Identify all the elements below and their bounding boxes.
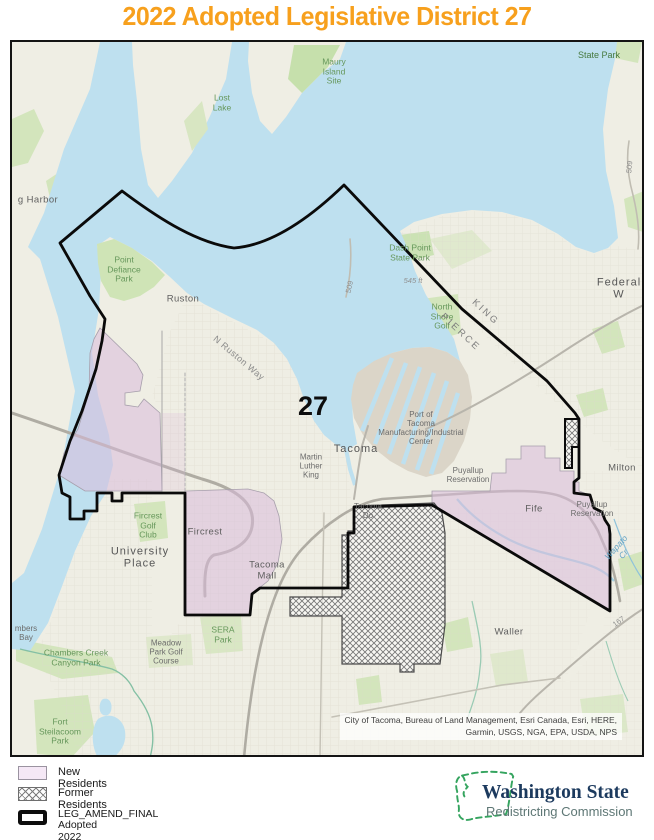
map-label-north-shore-golf: North Shore Golf: [431, 303, 454, 332]
map-label-milton: Milton: [608, 464, 636, 475]
map-label-fort-steilacoom-park: Fort Steilacoom Park: [39, 718, 81, 747]
map-labels: State ParkLost LakeMaury Island Siteg Ha…: [12, 42, 642, 755]
map-label-fircrest-golf-club: Fircrest Golf Club: [134, 512, 162, 541]
map-label-tacoma-mall: Tacoma Mall: [249, 560, 285, 581]
map-label-route-509-b: 509: [625, 160, 634, 173]
map-label-university-place: University Place: [111, 546, 169, 571]
map-label-gig-harbor: g Harbor: [18, 196, 58, 207]
map-label-chambers-creek-canyon-park: Chambers Creek Canyon Park: [44, 648, 108, 667]
map-label-puyallup-reservation-1: Puyallup Reservation: [447, 467, 490, 485]
map-label-state-park: State Park: [578, 50, 620, 60]
leg-amend-swatch: [18, 810, 47, 825]
page: 2022 Adopted Legislative District 27: [0, 0, 654, 840]
map-label-route-509-a: 509: [345, 280, 356, 294]
leg-amend-sublabel: Adopted 2022: [58, 819, 97, 840]
commission-logo: Washington State Redistricting Commissio…: [446, 760, 651, 838]
attribution-line1: City of Tacoma, Bureau of Land Managemen…: [345, 715, 617, 727]
map-label-meadow-park-golf: Meadow Park Golf Course: [149, 640, 182, 667]
page-title: 2022 Adopted Legislative District 27: [13, 1, 641, 32]
map-attribution: City of Tacoma, Bureau of Land Managemen…: [340, 713, 622, 740]
map-label-federal-way: Federal W: [597, 277, 641, 302]
attribution-line2: Garmin, USGS, NGA, EPA, USDA, NPS: [345, 727, 617, 739]
map-label-county-king: KING: [469, 298, 501, 328]
map-label-waller: Waller: [495, 628, 524, 639]
map-label-tacoma: Tacoma: [334, 443, 379, 455]
map-label-fircrest: Fircrest: [188, 528, 223, 539]
map-label-sera-park: SERA Park: [211, 625, 234, 644]
map-label-port-of-tacoma: Port of Tacoma Manufacturing/Industrial …: [378, 411, 463, 447]
former-residents-swatch: [18, 787, 47, 801]
map-label-tacoma-dome: Tacoma Do: [354, 503, 382, 521]
map-label-district-27: 27: [298, 391, 328, 421]
map-label-fife: Fife: [525, 505, 542, 516]
new-residents-swatch: [18, 766, 47, 780]
map-label-puyallup-reservation-2: Puyallup Reservation: [571, 501, 614, 519]
map-label-dash-point-state-park: Dash Point State Park: [389, 243, 431, 262]
map-label-chambers-bay: mbers Bay: [15, 625, 37, 643]
district-map: State ParkLost LakeMaury Island Siteg Ha…: [10, 40, 644, 757]
map-label-ruston: Ruston: [167, 295, 200, 306]
map-label-n-ruston-way: N Ruston Way: [211, 334, 266, 383]
map-label-point-defiance-park: Point Defiance Park: [107, 256, 141, 285]
map-label-elev-545: 545 ft: [404, 277, 423, 285]
map-label-martin-luther-king: Martin Luther King: [300, 454, 323, 481]
logo-subtitle: Redistricting Commission: [486, 804, 633, 819]
map-label-county-pierce: PIERCE: [438, 312, 482, 354]
map-label-route-167: 167: [611, 615, 626, 629]
map-label-lost-lake: Lost Lake: [213, 93, 231, 112]
map-label-wapato-creek: Wapato Cr: [603, 534, 637, 568]
logo-title: Washington State: [482, 782, 629, 804]
map-label-maury-island-site: Maury Island Site: [322, 58, 346, 87]
